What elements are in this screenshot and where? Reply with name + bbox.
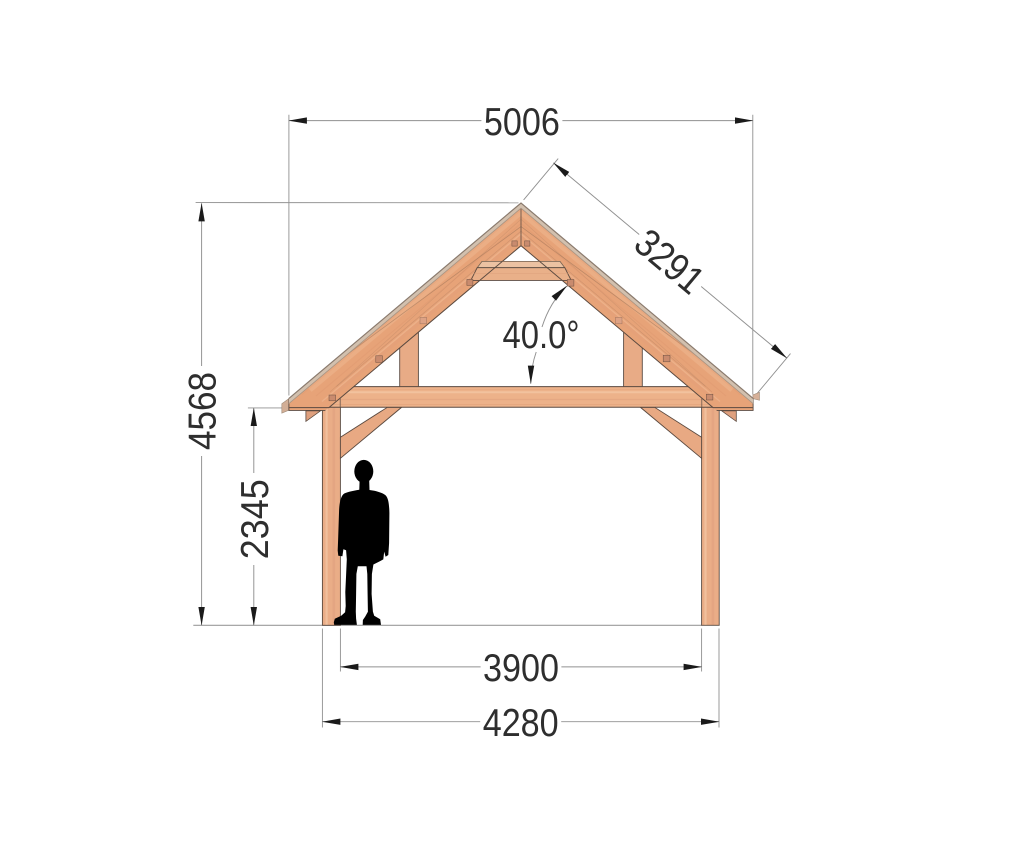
svg-text:4568: 4568 xyxy=(182,372,225,450)
svg-text:2345: 2345 xyxy=(234,479,277,559)
svg-text:3900: 3900 xyxy=(483,647,559,690)
svg-text:4280: 4280 xyxy=(483,702,559,745)
svg-text:40.0°: 40.0° xyxy=(503,314,580,357)
svg-text:5006: 5006 xyxy=(484,101,560,144)
